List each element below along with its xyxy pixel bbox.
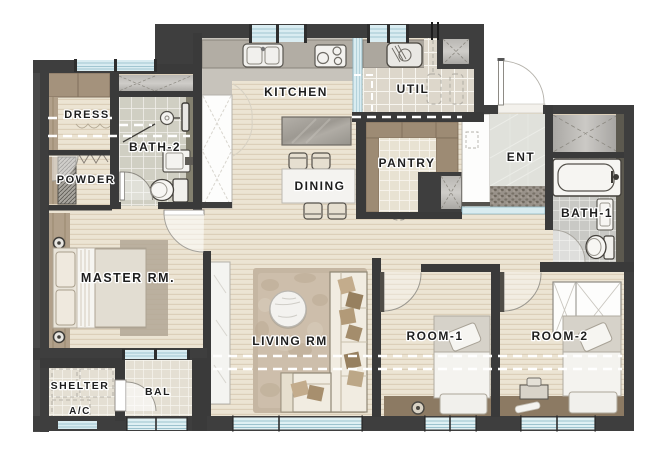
svg-text:BAL: BAL <box>145 386 171 398</box>
svg-text:MASTER RM.: MASTER RM. <box>81 271 175 285</box>
svg-text:DINING: DINING <box>295 179 346 193</box>
svg-text:PANTRY: PANTRY <box>379 156 436 170</box>
svg-text:A/C: A/C <box>69 406 91 417</box>
svg-text:BATH-1: BATH-1 <box>561 206 613 220</box>
svg-text:BATH-2: BATH-2 <box>129 140 181 154</box>
svg-text:LIVING RM: LIVING RM <box>252 334 328 348</box>
svg-text:ROOM-2: ROOM-2 <box>532 329 589 343</box>
svg-text:UTIL: UTIL <box>397 82 430 96</box>
svg-text:KITCHEN: KITCHEN <box>264 85 328 99</box>
svg-text:SHELTER: SHELTER <box>51 380 110 392</box>
svg-text:ENT: ENT <box>507 150 536 164</box>
svg-text:DRESS: DRESS <box>64 109 109 121</box>
svg-text:POWDER: POWDER <box>57 174 116 186</box>
svg-text:ROOM-1: ROOM-1 <box>407 329 464 343</box>
